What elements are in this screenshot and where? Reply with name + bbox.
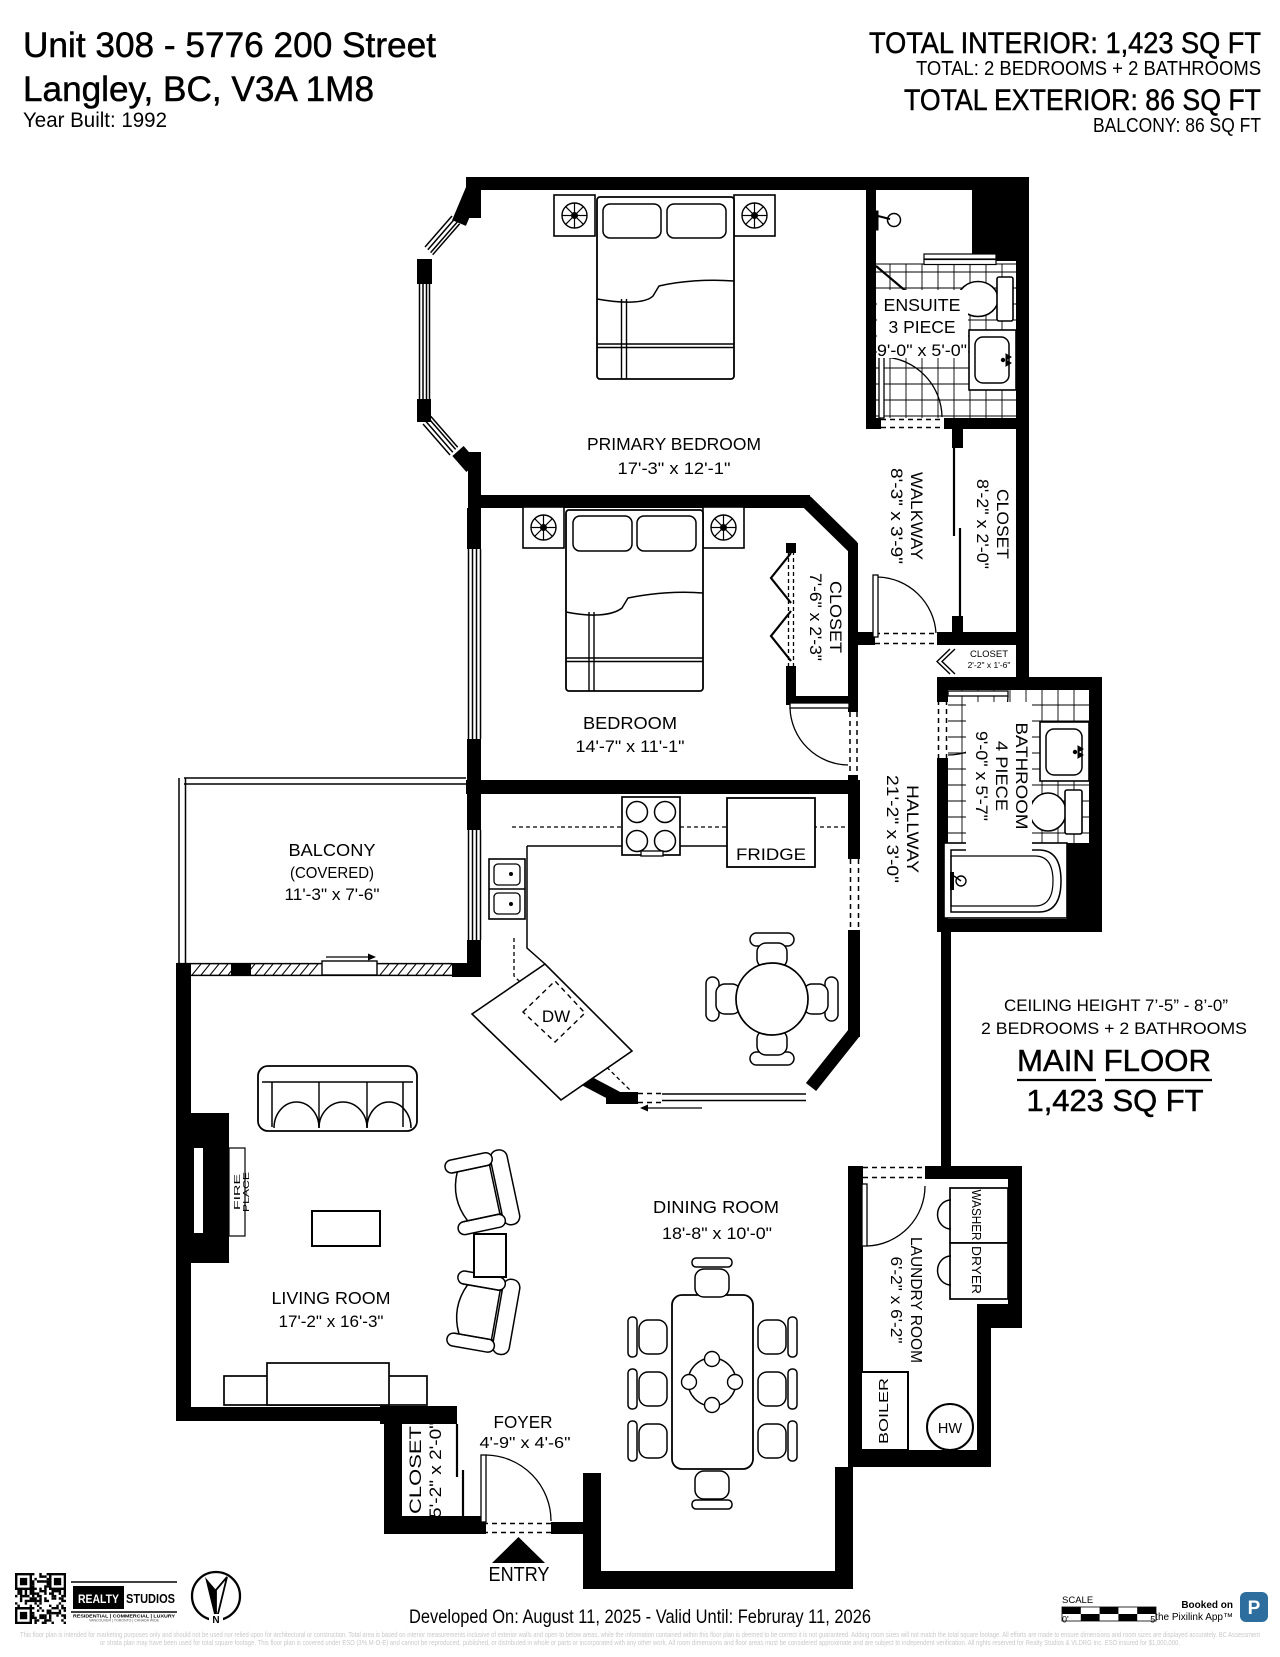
svg-text:FIREPLACE: FIREPLACE [233,1172,251,1212]
svg-text:(COVERED): (COVERED) [290,865,374,882]
svg-text:VANCOUVER | TORONTO | CANADA W: VANCOUVER | TORONTO | CANADA WIDE [89,1619,160,1623]
svg-text:LIVING ROOM: LIVING ROOM [272,1288,391,1308]
svg-text:ENSUITE: ENSUITE [884,295,961,315]
svg-text:ENTRY: ENTRY [489,1563,550,1586]
svg-text:14'-7" x 11'-1": 14'-7" x 11'-1" [576,738,685,756]
svg-text:17'-2" x 16'-3": 17'-2" x 16'-3" [279,1313,384,1331]
svg-text:Developed On: August 11, 2025: Developed On: August 11, 2025 - Valid Un… [409,1606,871,1628]
svg-text:Year Built: 1992: Year Built: 1992 [23,109,167,132]
svg-text:BEDROOM: BEDROOM [583,713,677,733]
svg-text:or strata plan may have been u: or strata plan may have been used for to… [100,1638,1180,1647]
svg-text:BALCONY: BALCONY [289,840,376,860]
svg-text:0': 0' [1062,1615,1069,1625]
svg-text:MAIN FLOOR: MAIN FLOOR [1017,1044,1211,1078]
svg-text:18'-8" x 10'-0": 18'-8" x 10'-0" [662,1225,772,1243]
svg-text:HW: HW [938,1421,962,1437]
svg-text:TOTAL EXTERIOR: 86 SQ FT: TOTAL EXTERIOR: 86 SQ FT [904,84,1261,117]
svg-text:BOILER: BOILER [876,1378,891,1444]
svg-text:4'-9" x 4'-6": 4'-9" x 4'-6" [480,1435,571,1452]
svg-text:BALCONY: 86 SQ FT: BALCONY: 86 SQ FT [1093,115,1261,137]
svg-text:STUDIOS: STUDIOS [126,1592,175,1606]
svg-text:HALLWAY21'-2" x 3'-0": HALLWAY21'-2" x 3'-0" [883,775,922,883]
svg-text:Langley, BC, V3A 1M8: Langley, BC, V3A 1M8 [23,70,374,109]
svg-text:FOYER: FOYER [494,1412,553,1432]
svg-text:2'-2" x 1'-6": 2'-2" x 1'-6" [968,660,1011,670]
svg-text:1,423 SQ FT: 1,423 SQ FT [1027,1084,1204,1118]
svg-text:PRIMARY BEDROOM: PRIMARY BEDROOM [587,434,761,454]
svg-text:WASHER: WASHER [969,1190,983,1241]
svg-text:TOTAL INTERIOR: 1,423 SQ FT: TOTAL INTERIOR: 1,423 SQ FT [869,27,1261,60]
svg-text:Unit 308 - 5776 200 Street: Unit 308 - 5776 200 Street [23,26,436,65]
svg-text:11'-3" x 7'-6": 11'-3" x 7'-6" [285,886,380,904]
svg-text:P: P [1248,1598,1261,1619]
svg-text:CEILING HEIGHT 7’-5” - 8’-0”: CEILING HEIGHT 7’-5” - 8’-0” [1004,997,1228,1015]
svg-text:Booked on: Booked on [1181,1600,1233,1611]
svg-text:DRYER: DRYER [969,1246,983,1294]
svg-text:REALTY: REALTY [78,1592,119,1606]
svg-text:17'-3" x 12'-1": 17'-3" x 12'-1" [618,460,731,478]
svg-text:DW: DW [542,1007,570,1026]
svg-text:WALKWAY8'-3" x 3'-9": WALKWAY8'-3" x 3'-9" [887,468,926,564]
svg-text:2 BEDROOMS + 2 BATHROOMS: 2 BEDROOMS + 2 BATHROOMS [981,1020,1247,1038]
svg-text:the Pixilink App™: the Pixilink App™ [1155,1612,1233,1623]
svg-text:TOTAL: 2 BEDROOMS + 2 BATHROO: TOTAL: 2 BEDROOMS + 2 BATHROOMS [916,58,1261,80]
svg-text:N: N [212,1615,219,1626]
svg-text:9'-0" x 5'-0": 9'-0" x 5'-0" [877,342,967,360]
svg-text:SCALE: SCALE [1062,1595,1093,1606]
svg-text:DINING ROOM: DINING ROOM [653,1197,779,1217]
svg-text:CLOSET: CLOSET [970,649,1008,660]
svg-text:FRIDGE: FRIDGE [736,846,806,864]
svg-text:3 PIECE: 3 PIECE [889,317,956,337]
